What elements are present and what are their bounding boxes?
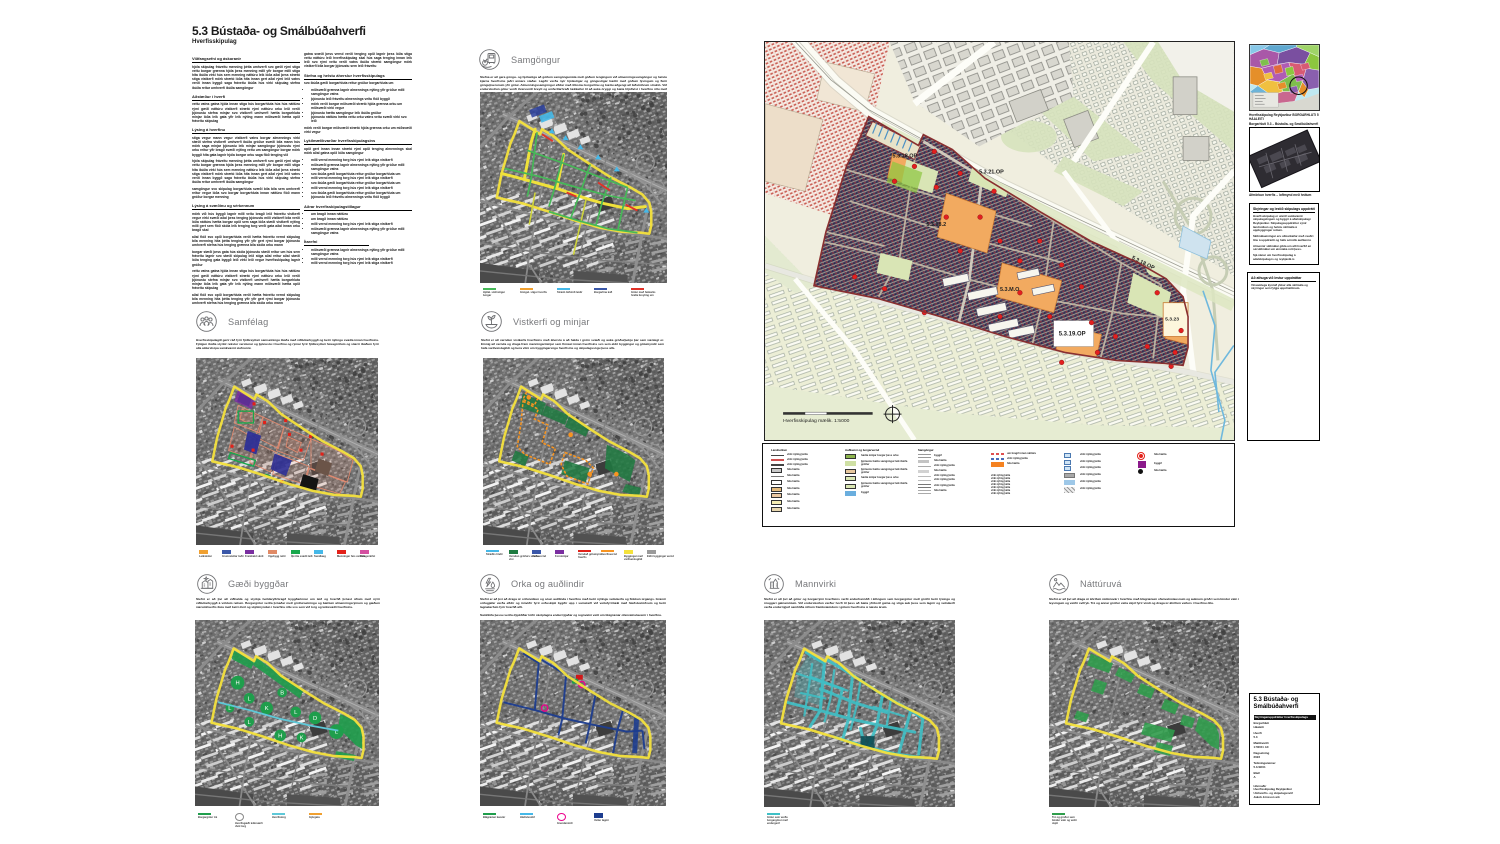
svg-text:H: H	[278, 733, 282, 739]
svg-text:5.3.M.O: 5.3.M.O	[1000, 287, 1020, 293]
svg-text:5.3.19.OP: 5.3.19.OP	[1059, 332, 1086, 338]
svg-text:H: H	[236, 681, 240, 687]
svg-text:B: B	[280, 690, 284, 696]
svg-text:5.3.23: 5.3.23	[1165, 317, 1179, 323]
svg-text:K: K	[300, 735, 304, 741]
svg-text:5.3.18.OP: 5.3.18.OP	[893, 153, 918, 159]
svg-text:K: K	[265, 706, 269, 712]
svg-text:Hverfisskipulag mælik. 1:5000: Hverfisskipulag mælik. 1:5000	[783, 418, 850, 424]
svg-text:5.3.18.2: 5.3.18.2	[926, 222, 946, 228]
svg-text:D: D	[313, 716, 317, 722]
svg-text:5.3.21.OP: 5.3.21.OP	[979, 169, 1004, 175]
